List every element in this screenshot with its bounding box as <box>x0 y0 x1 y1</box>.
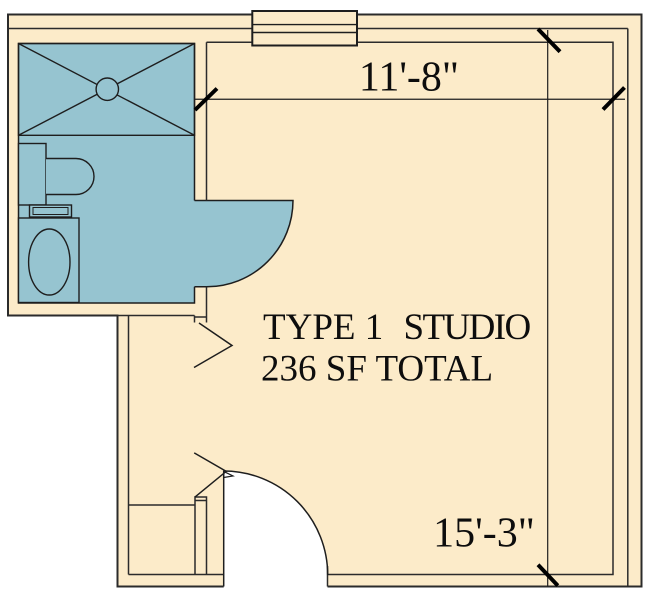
svg-text:236 SF TOTAL: 236 SF TOTAL <box>261 349 493 390</box>
svg-text:STUDIO: STUDIO <box>404 307 531 348</box>
svg-text:11'-8": 11'-8" <box>359 54 459 100</box>
svg-text:TYPE 1: TYPE 1 <box>263 307 383 348</box>
svg-text:15'-3": 15'-3" <box>433 511 535 557</box>
